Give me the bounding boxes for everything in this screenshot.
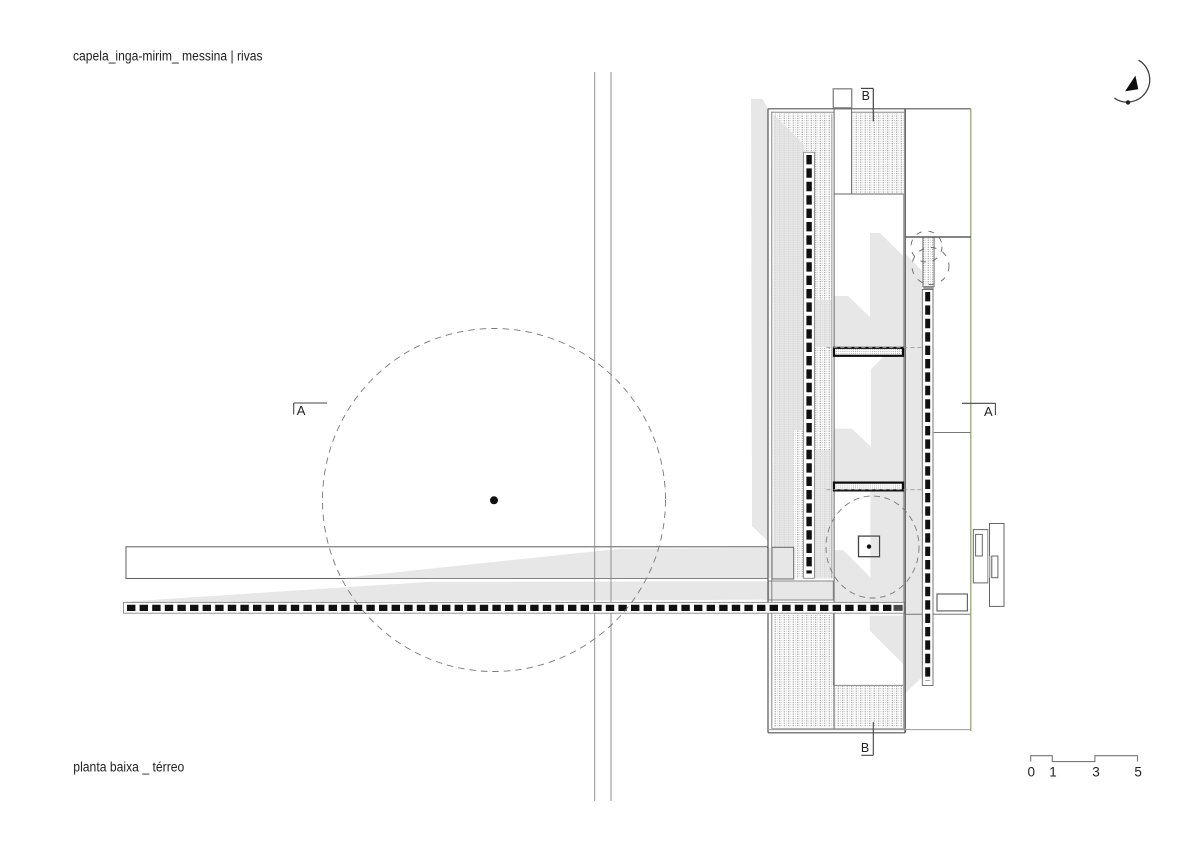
svg-text:A: A bbox=[984, 404, 993, 419]
svg-text:A: A bbox=[297, 403, 306, 418]
svg-text:capela_inga-mirim_ messina | r: capela_inga-mirim_ messina | rivas bbox=[73, 49, 263, 64]
svg-text:0: 0 bbox=[1028, 765, 1036, 780]
svg-text:1: 1 bbox=[1049, 765, 1057, 780]
svg-text:B: B bbox=[862, 89, 870, 103]
svg-text:3: 3 bbox=[1092, 765, 1100, 780]
svg-text:5: 5 bbox=[1134, 765, 1142, 780]
svg-text:planta baixa _ térreo: planta baixa _ térreo bbox=[73, 760, 184, 775]
svg-text:B: B bbox=[861, 741, 869, 755]
